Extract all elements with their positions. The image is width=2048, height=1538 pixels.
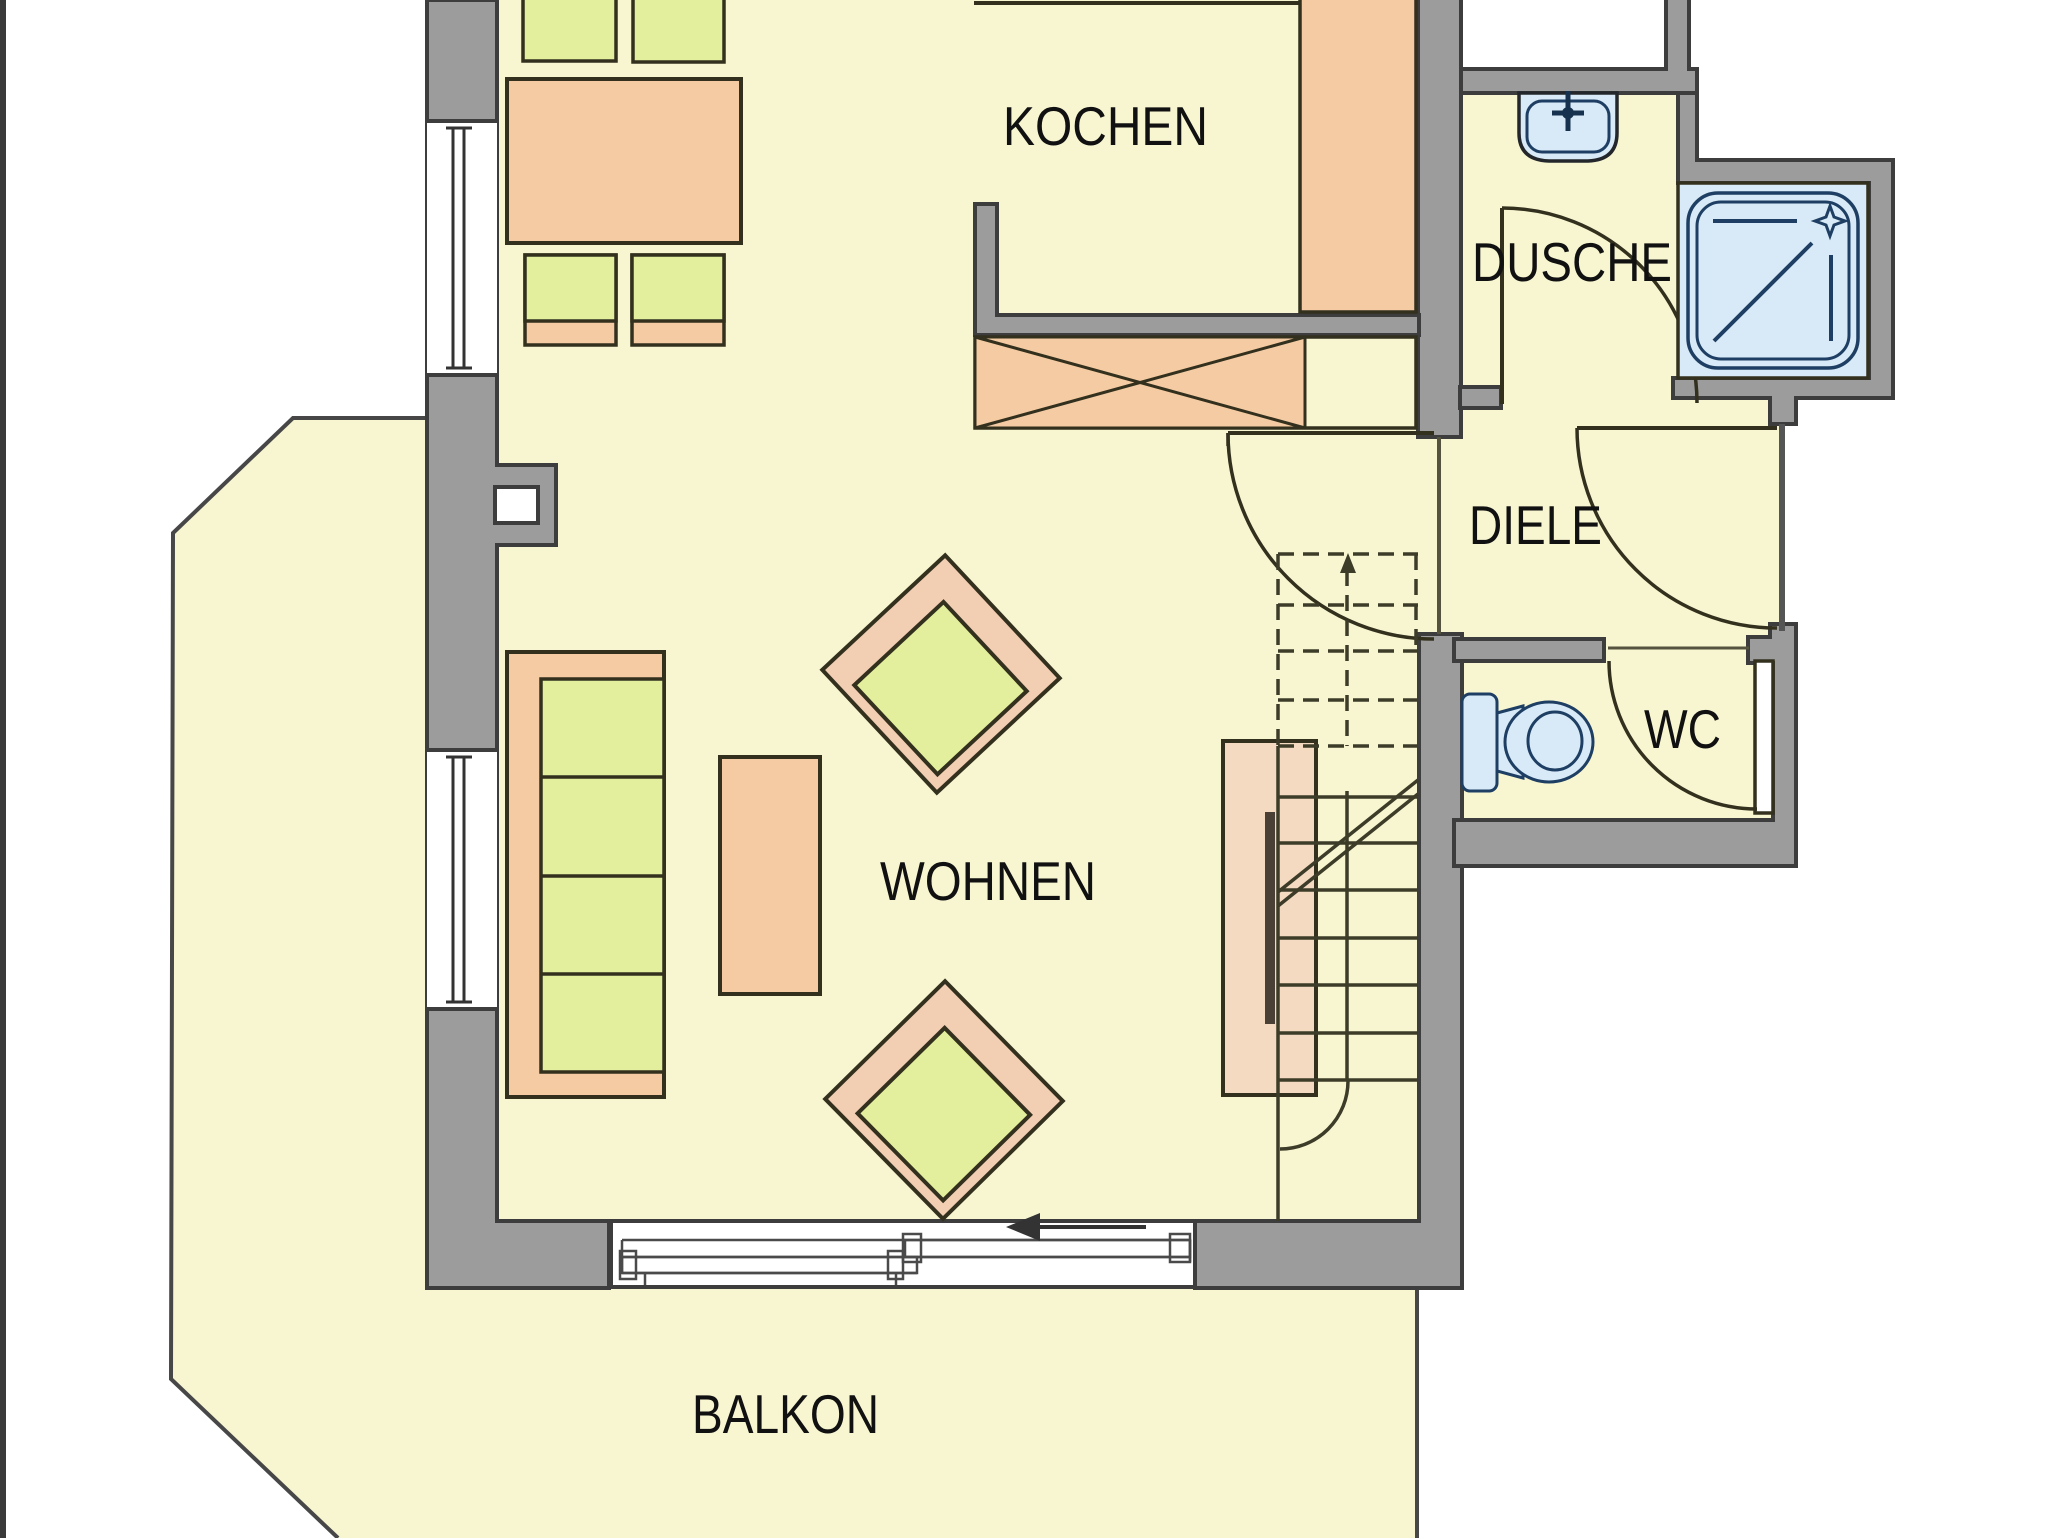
svg-text:DUSCHE: DUSCHE	[1472, 231, 1672, 293]
svg-text:WOHNEN: WOHNEN	[880, 850, 1096, 912]
svg-text:BALKON: BALKON	[692, 1383, 879, 1445]
svg-text:WC: WC	[1644, 698, 1721, 760]
svg-text:DIELE: DIELE	[1469, 494, 1602, 556]
svg-text:KOCHEN: KOCHEN	[1003, 95, 1208, 157]
